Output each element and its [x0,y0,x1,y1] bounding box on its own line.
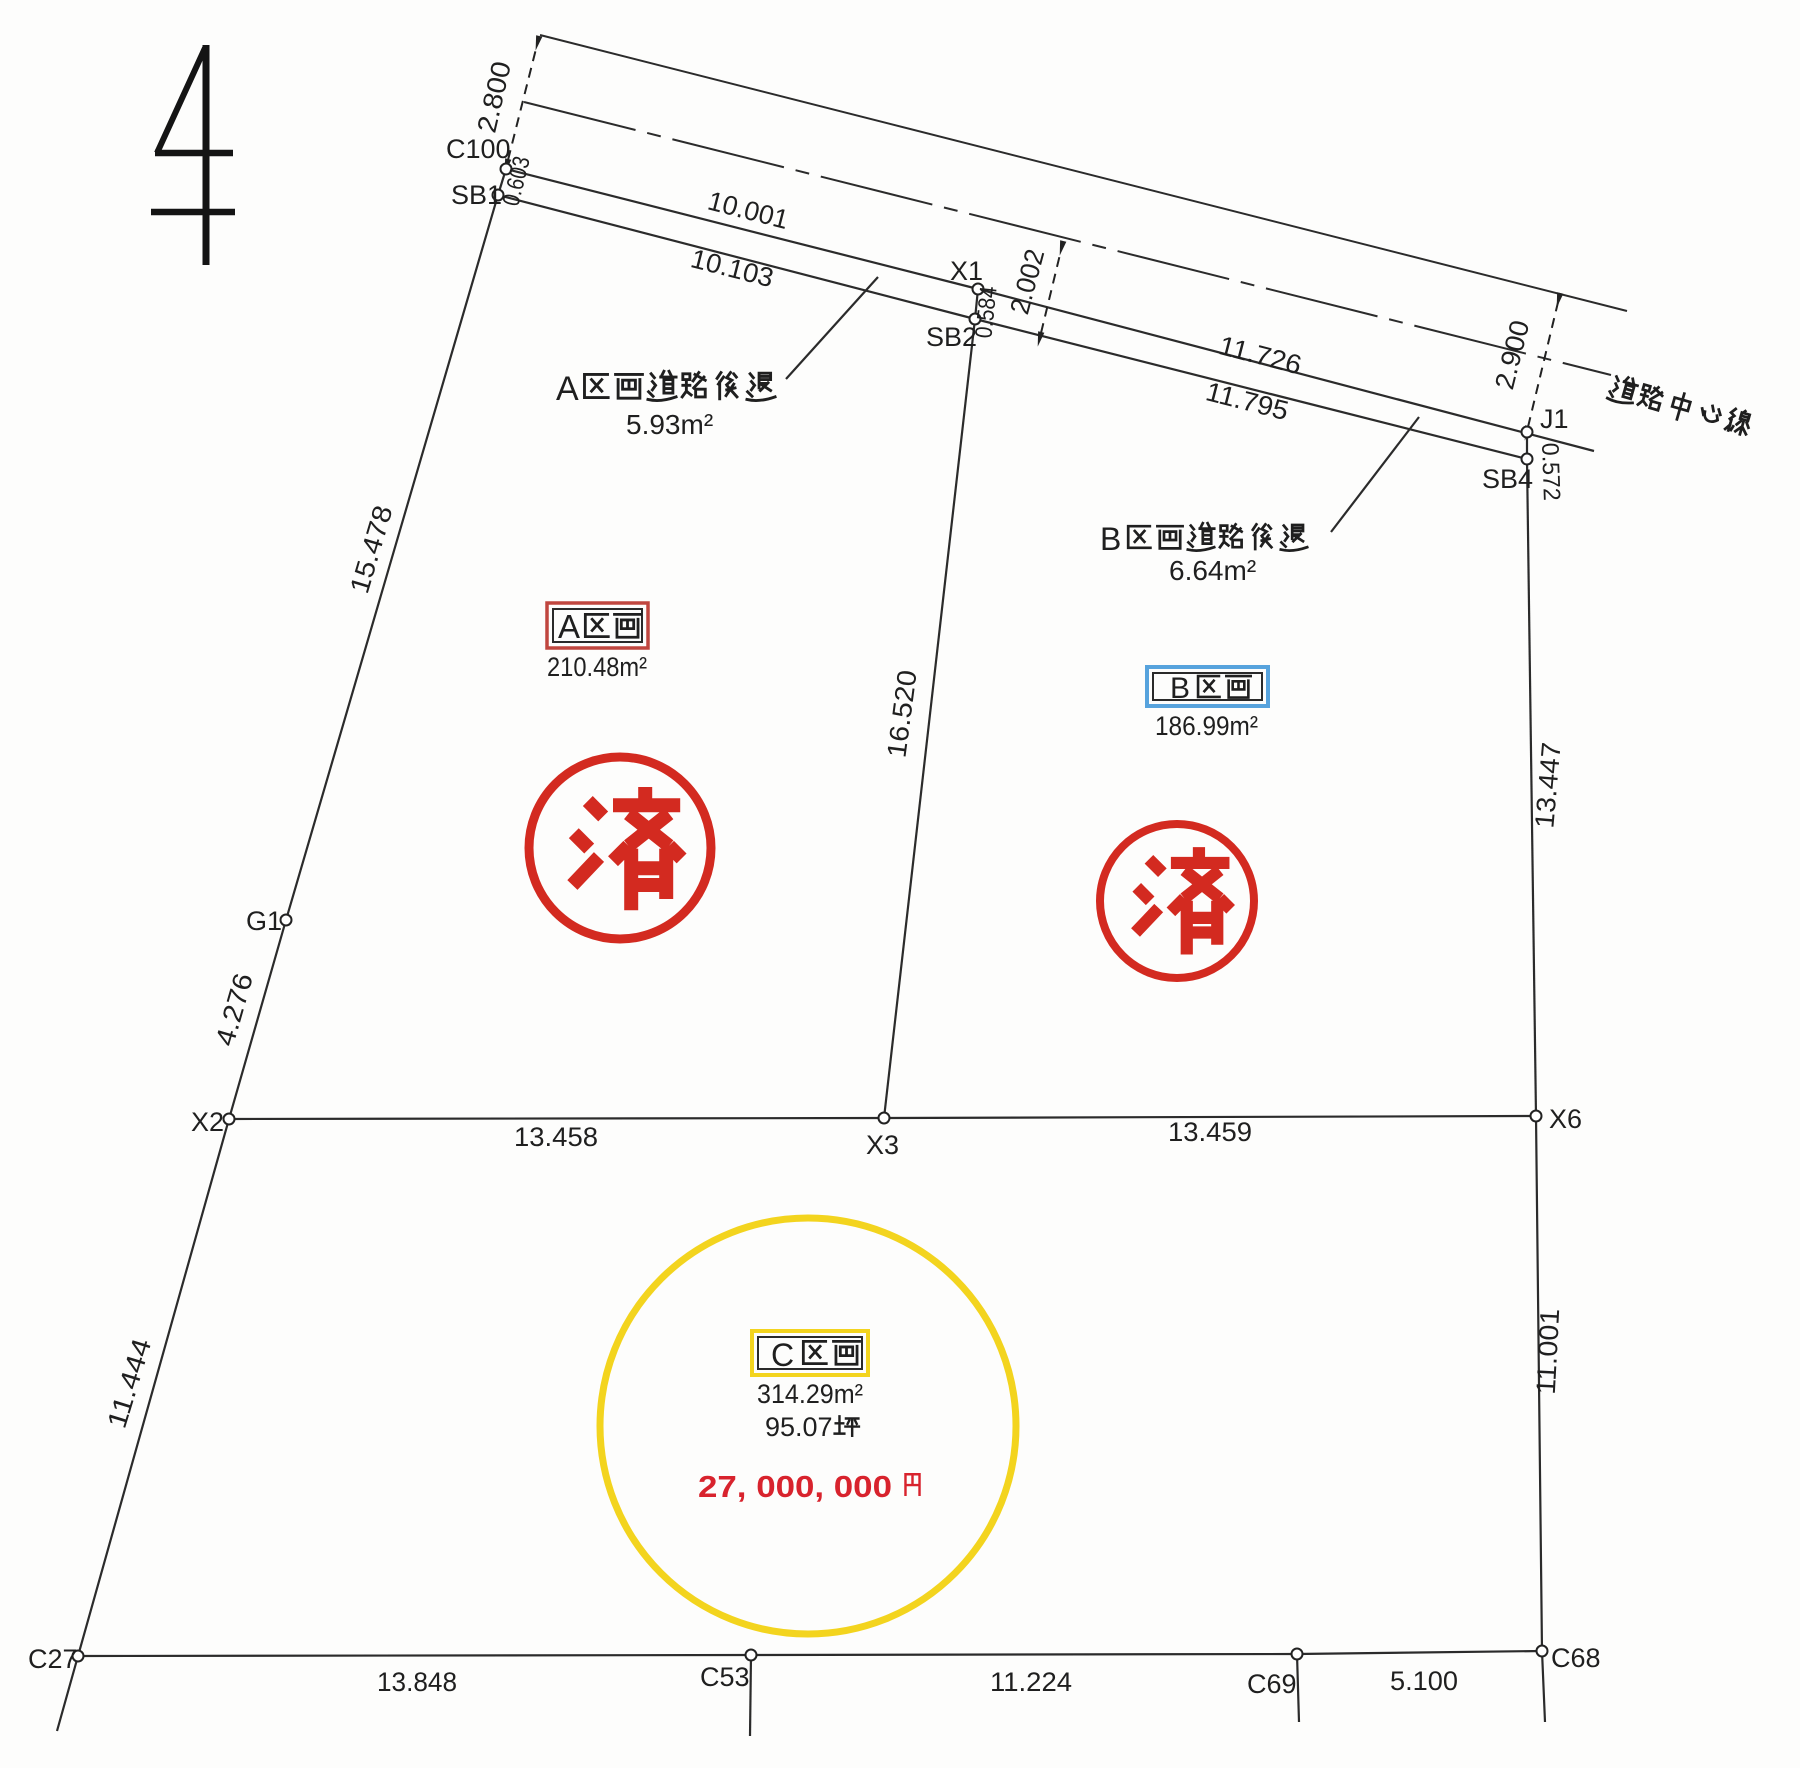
svg-text:6.64m²: 6.64m² [1169,555,1256,586]
svg-text:13.459: 13.459 [1168,1117,1252,1147]
svg-text:11.224: 11.224 [990,1667,1072,1697]
svg-text:A: A [556,370,579,408]
svg-text:13.458: 13.458 [514,1122,598,1152]
svg-text:X2: X2 [191,1107,224,1137]
svg-text:G1: G1 [246,906,282,936]
svg-text:C27: C27 [28,1644,78,1674]
svg-text:0.572: 0.572 [1536,442,1565,501]
svg-text:C69: C69 [1247,1669,1297,1699]
svg-text:X1: X1 [950,256,983,286]
svg-text:C: C [771,1337,794,1373]
svg-text:13.848: 13.848 [377,1667,457,1697]
svg-text:210.48m²: 210.48m² [547,652,647,682]
svg-text:C53: C53 [700,1662,750,1692]
svg-text:J1: J1 [1540,404,1569,434]
svg-text:SB1: SB1 [451,180,502,210]
svg-text:SB4: SB4 [1482,464,1533,494]
svg-text:186.99m²: 186.99m² [1155,711,1258,741]
svg-text:0.584: 0.584 [970,285,1002,340]
svg-text:C68: C68 [1551,1643,1601,1673]
svg-text:C100: C100 [446,134,511,164]
svg-text:B: B [1100,521,1121,557]
svg-text:27, 000, 000: 27, 000, 000 [698,1469,892,1504]
svg-text:A: A [558,608,580,645]
svg-text:X3: X3 [866,1130,899,1160]
svg-text:5.93m²: 5.93m² [626,409,713,440]
svg-text:B: B [1170,672,1190,705]
svg-text:5.100: 5.100 [1390,1666,1458,1696]
svg-text:95.07: 95.07 [765,1412,833,1442]
svg-text:314.29m²: 314.29m² [757,1379,863,1409]
svg-text:X6: X6 [1549,1104,1582,1134]
svg-text:11.001: 11.001 [1531,1308,1565,1395]
